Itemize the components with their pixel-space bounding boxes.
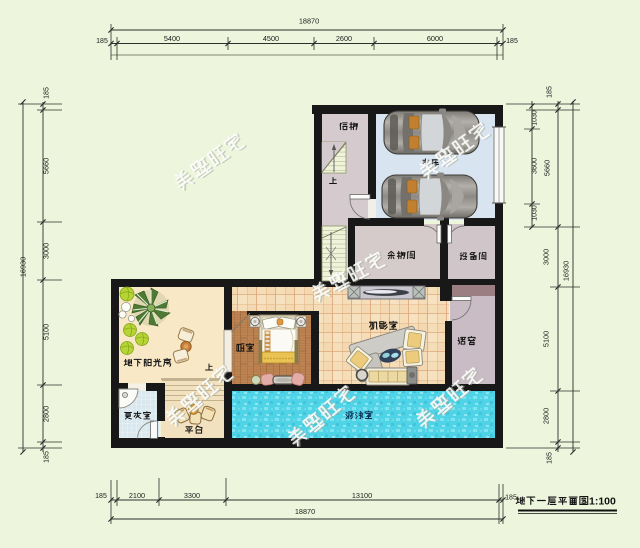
svg-text:185: 185 <box>505 495 517 502</box>
svg-text:16930: 16930 <box>19 257 28 277</box>
svg-text:13100: 13100 <box>352 491 372 500</box>
svg-text:185: 185 <box>44 451 51 463</box>
svg-text:5400: 5400 <box>164 34 180 43</box>
svg-text:3300: 3300 <box>184 491 200 500</box>
svg-text:185: 185 <box>44 87 51 99</box>
svg-text:1030: 1030 <box>532 110 539 126</box>
svg-text:185: 185 <box>547 452 554 464</box>
svg-text:5660: 5660 <box>42 158 51 174</box>
svg-text:3600: 3600 <box>530 158 539 174</box>
svg-text:3000: 3000 <box>542 249 551 265</box>
svg-text:185: 185 <box>95 493 107 500</box>
svg-text:2600: 2600 <box>336 34 352 43</box>
svg-text:16930: 16930 <box>562 261 571 281</box>
svg-text:5100: 5100 <box>542 331 551 347</box>
svg-text:1030: 1030 <box>532 205 539 221</box>
svg-text:2800: 2800 <box>42 406 51 422</box>
svg-text:5660: 5660 <box>543 160 552 176</box>
svg-text:6000: 6000 <box>427 34 443 43</box>
svg-text:185: 185 <box>547 86 554 98</box>
svg-text:5100: 5100 <box>42 324 51 340</box>
svg-text:4500: 4500 <box>263 34 279 43</box>
svg-text:185: 185 <box>96 38 108 45</box>
svg-text:18870: 18870 <box>295 507 315 516</box>
svg-text:2800: 2800 <box>542 408 551 424</box>
svg-text:18870: 18870 <box>299 17 319 26</box>
svg-text:2100: 2100 <box>129 491 145 500</box>
svg-text:1:100: 1:100 <box>589 496 616 508</box>
svg-text:185: 185 <box>506 38 518 45</box>
svg-text:3000: 3000 <box>42 243 51 259</box>
